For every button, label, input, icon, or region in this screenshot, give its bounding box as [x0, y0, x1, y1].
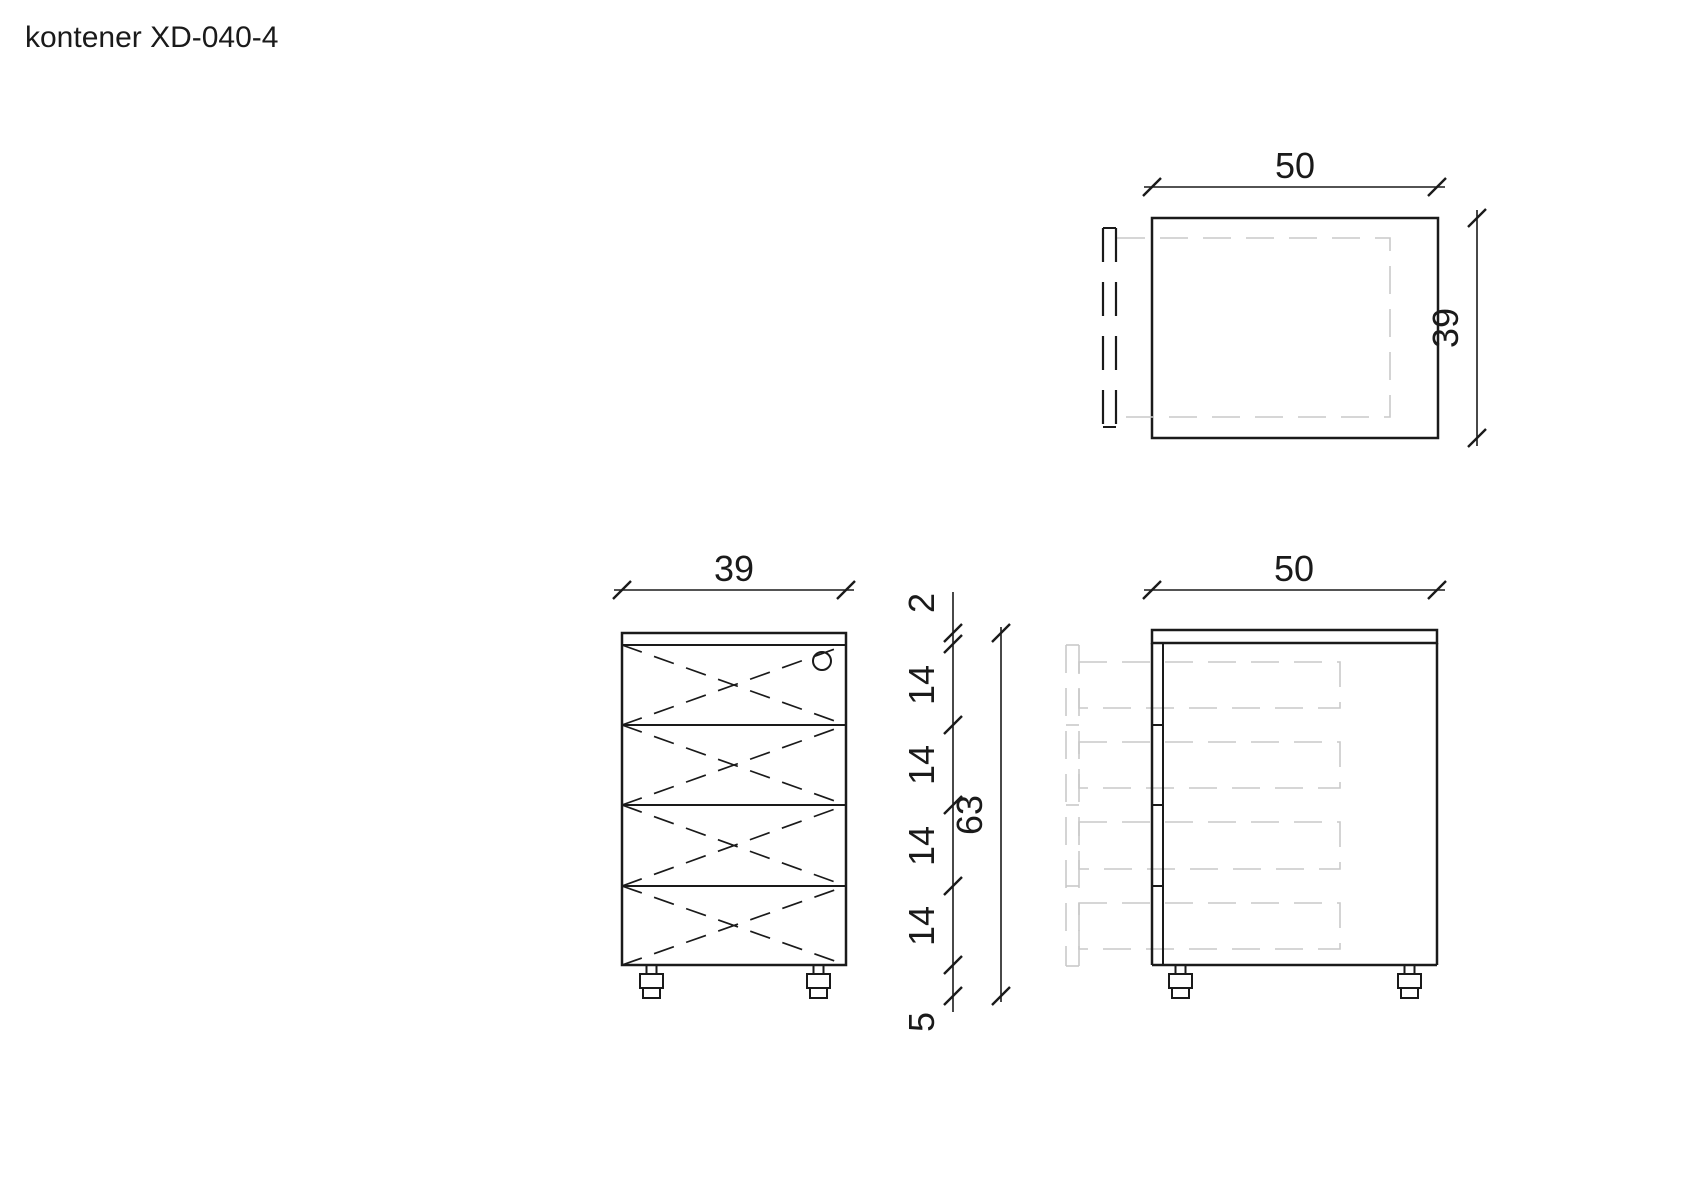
side-view-drawer-box-phantoms — [1079, 662, 1340, 949]
top-view-width-dimension: 50 — [1143, 145, 1446, 196]
top-view-drawer-front-phantom — [1103, 228, 1116, 427]
top-view: 50 39 — [1103, 145, 1486, 447]
lock-cylinder — [813, 652, 831, 670]
chain-segment-label-drawer1: 14 — [901, 665, 942, 705]
total-height-label: 63 — [949, 795, 990, 835]
drawing-sheet: kontener XD-040-4 50 39 — [0, 0, 1698, 1200]
chain-segment-label-drawer3: 14 — [901, 826, 942, 866]
front-view-carcass — [622, 633, 846, 965]
top-view-width-label: 50 — [1275, 145, 1315, 186]
front-view-width-dimension: 39 — [613, 548, 855, 599]
drawing-title: kontener XD-040-4 — [25, 21, 278, 54]
side-back-caster — [1398, 965, 1421, 998]
chain-segment-label-top-panel: 2 — [901, 593, 942, 613]
side-view-drawer-front-phantom — [1066, 645, 1079, 966]
top-view-drawer-box-phantom — [1117, 238, 1390, 417]
total-height-dimension: 63 — [949, 624, 1010, 1005]
front-left-caster — [640, 965, 663, 998]
chain-segment-label-drawer2: 14 — [901, 745, 942, 785]
chain-segment-label-drawer4: 14 — [901, 906, 942, 946]
top-view-carcass — [1152, 218, 1438, 438]
side-view-depth-dimension: 50 — [1143, 548, 1446, 599]
chain-segment-label-feet: 5 — [901, 1012, 942, 1032]
top-view-depth-dimension: 39 — [1425, 209, 1486, 447]
technical-drawing: kontener XD-040-4 50 39 — [0, 0, 1698, 1200]
front-view-width-label: 39 — [714, 548, 754, 589]
top-view-depth-label: 39 — [1425, 308, 1466, 348]
side-view-top-panel — [1152, 630, 1437, 643]
side-view: 50 — [1066, 548, 1446, 998]
side-view-depth-label: 50 — [1274, 548, 1314, 589]
front-view: 39 — [613, 548, 855, 998]
front-right-caster — [807, 965, 830, 998]
side-front-caster — [1169, 965, 1192, 998]
